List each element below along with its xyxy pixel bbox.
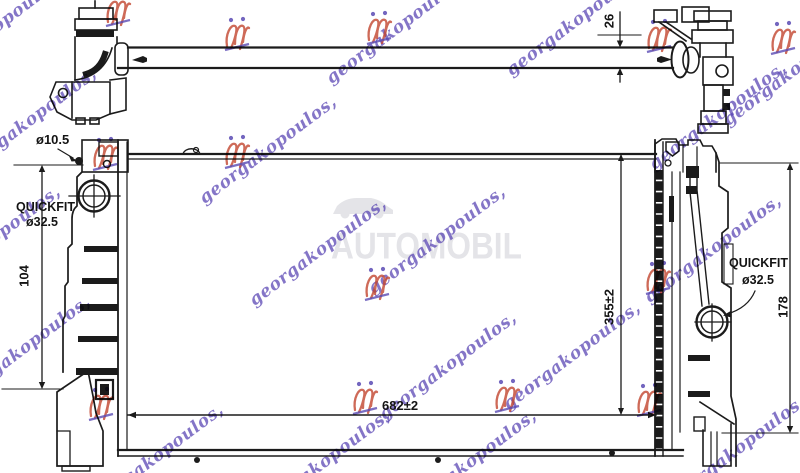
dim-label-core-depth: 26 — [603, 14, 616, 28]
radiator-drawing-page: AUTOMOBIL georgakopoulos, georgakopoulos… — [0, 0, 800, 473]
dim-label-core-height: 355±2 — [603, 289, 616, 325]
dim-label-core-width: 682±2 — [382, 399, 418, 412]
dim-label-quickfit-right: QUICKFIT — [729, 257, 788, 270]
dim-label-quickfit-left-diameter: ø32.5 — [26, 216, 58, 229]
dim-label-quickfit-left: QUICKFIT — [16, 201, 75, 214]
dim-label-right-bracket-height: 178 — [777, 296, 790, 318]
dim-label-quickfit-right-diameter: ø32.5 — [742, 274, 774, 287]
dim-label-mount-hole-diameter: ø10.5 — [36, 133, 69, 146]
dim-label-left-bracket-height: 104 — [18, 265, 31, 287]
